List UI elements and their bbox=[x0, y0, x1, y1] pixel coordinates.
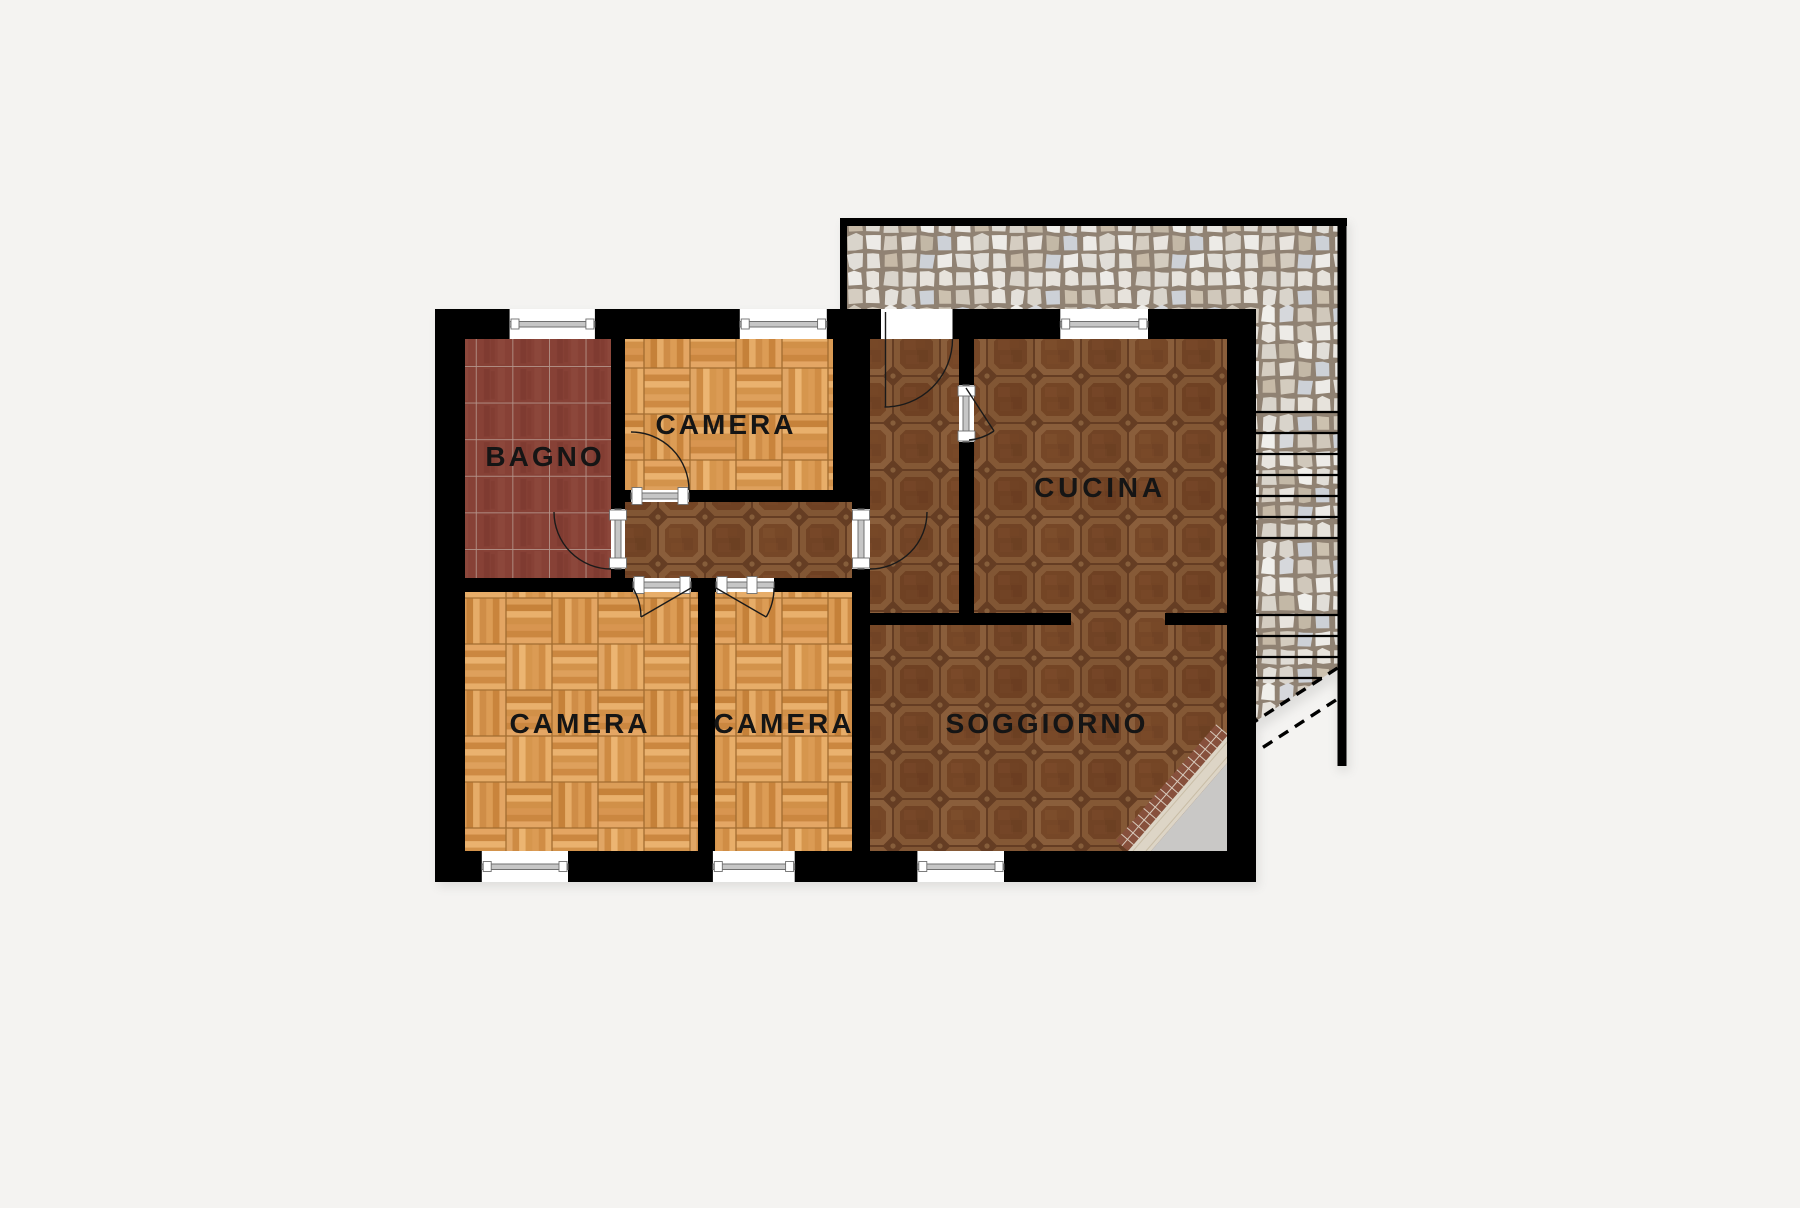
svg-text:BAGNO: BAGNO bbox=[485, 441, 604, 472]
svg-text:CUCINA: CUCINA bbox=[1034, 472, 1166, 503]
svg-text:CAMERA: CAMERA bbox=[714, 708, 855, 739]
svg-text:CAMERA: CAMERA bbox=[510, 708, 651, 739]
svg-text:SOGGIORNO: SOGGIORNO bbox=[946, 708, 1149, 739]
svg-text:CAMERA: CAMERA bbox=[656, 409, 797, 440]
